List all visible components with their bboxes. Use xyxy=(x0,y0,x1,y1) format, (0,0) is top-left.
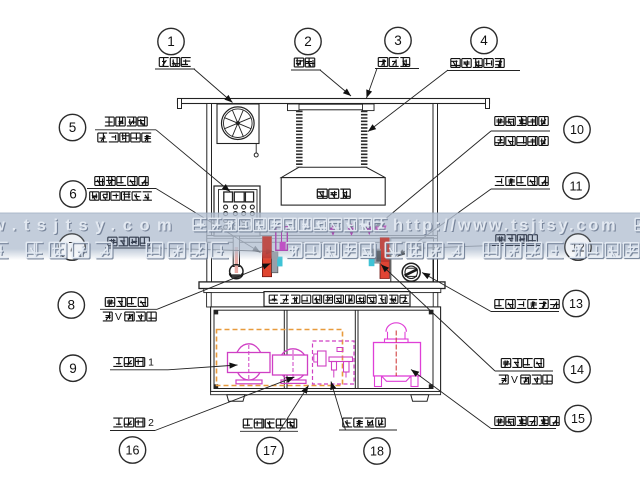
svg-text:10: 10 xyxy=(570,123,584,137)
svg-text:14: 14 xyxy=(570,363,584,377)
svg-text:17: 17 xyxy=(263,444,277,458)
svg-text:16: 16 xyxy=(126,443,140,457)
svg-text:1: 1 xyxy=(167,34,175,49)
svg-text:15: 15 xyxy=(571,412,585,426)
svg-text:13: 13 xyxy=(569,297,583,311)
svg-text:3: 3 xyxy=(394,33,402,48)
svg-text:18: 18 xyxy=(370,444,384,458)
svg-text:6: 6 xyxy=(69,187,77,202)
svg-text:http://www.tsjtsy.com: http://www.tsjtsy.com xyxy=(393,217,618,235)
svg-text:5: 5 xyxy=(69,120,77,135)
svg-text:4: 4 xyxy=(480,33,488,48)
svg-text:w.tsjtsy.com: w.tsjtsy.com xyxy=(0,217,179,235)
svg-text:9: 9 xyxy=(69,361,77,376)
svg-text:V: V xyxy=(511,375,518,386)
svg-text:2: 2 xyxy=(148,418,154,429)
svg-text:8: 8 xyxy=(68,298,76,313)
svg-text:1: 1 xyxy=(148,358,154,369)
svg-text:2: 2 xyxy=(304,34,312,49)
svg-text:V: V xyxy=(115,312,122,323)
svg-text:11: 11 xyxy=(570,179,583,193)
